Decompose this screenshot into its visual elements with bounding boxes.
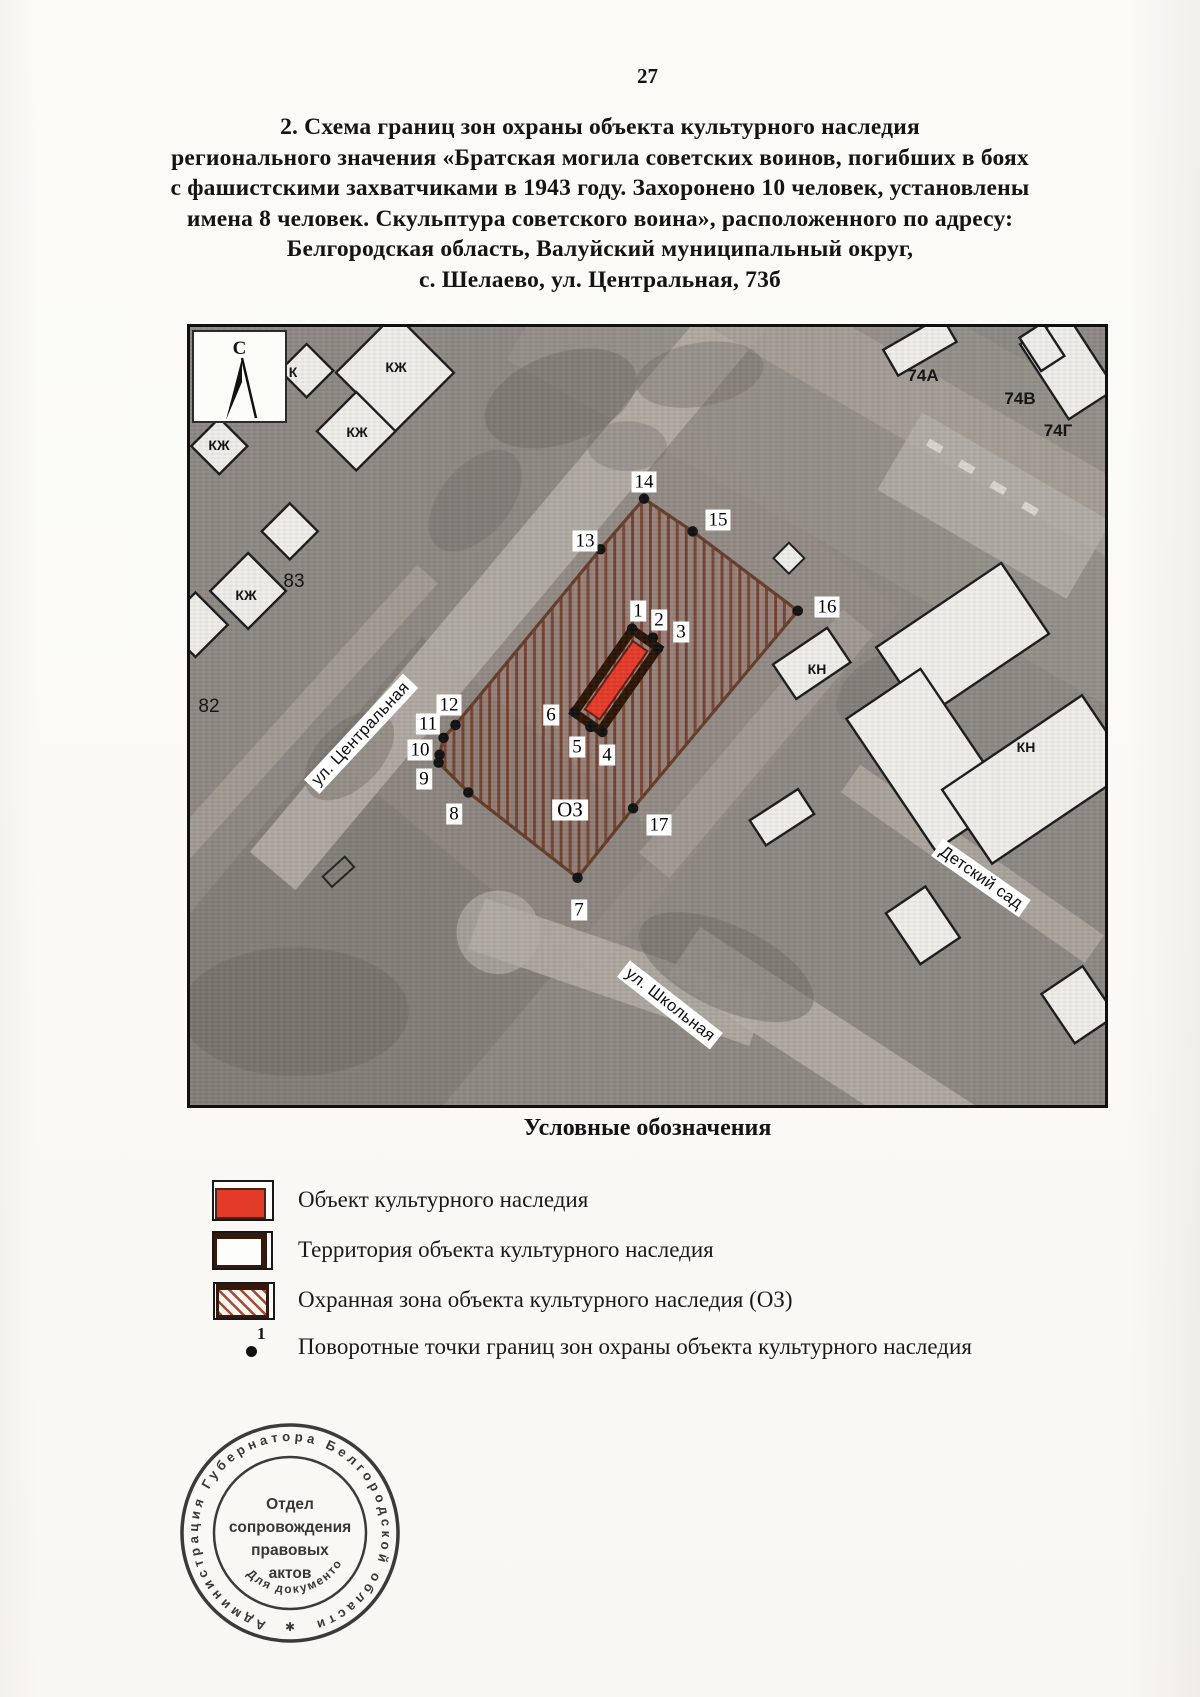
point-label-8: 8 — [446, 804, 462, 825]
point-label-17: 17 — [647, 815, 672, 836]
stamp-star-icon: ✱ — [285, 1620, 295, 1634]
building-label-kn: КН — [808, 661, 827, 677]
doc-title-line: с. Шелаево, ул. Центральная, 73б — [0, 265, 1200, 296]
building-label-74b: 74В — [1004, 389, 1035, 409]
point-label-6: 6 — [543, 705, 559, 726]
legend-icon-heritage-object — [212, 1180, 274, 1221]
building-label-kzh: КЖ — [235, 587, 256, 603]
point-label-10: 10 — [408, 740, 433, 761]
legend-turning-point-number: 1 — [257, 1324, 266, 1344]
legend-label: Объект культурного наследия — [298, 1187, 588, 1213]
point-label-7: 7 — [571, 900, 587, 921]
doc-title-line: 2. Схема границ зон охраны объекта культ… — [0, 112, 1200, 143]
doc-title-line: регионального значения «Братская могила … — [0, 143, 1200, 174]
legend-label: Охранная зона объекта культурного наслед… — [298, 1287, 793, 1313]
point-label-9: 9 — [416, 769, 432, 790]
point-label-12: 12 — [437, 695, 462, 716]
point-label-16: 16 — [815, 597, 840, 618]
legend-icon-protection-zone — [213, 1282, 275, 1320]
legend-icon-territory — [212, 1231, 273, 1270]
point-label-2: 2 — [651, 610, 667, 631]
zone-label-oz: ОЗ — [552, 800, 588, 821]
building-label-kzh: КЖ — [208, 437, 229, 453]
doc-title-line: Белгородская область, Валуйский муниципа… — [0, 234, 1200, 265]
building-label-kzh: КЖ — [385, 359, 406, 375]
point-label-15: 15 — [706, 510, 731, 531]
building-label-74a: 74А — [907, 366, 938, 386]
stamp-line: Отдел — [266, 1496, 314, 1513]
point-label-14: 14 — [632, 472, 657, 493]
building-label-kzh: КЖ — [346, 424, 367, 440]
satellite-map: С 1 2 3 4 5 6 7 8 9 10 11 12 13 14 15 16… — [187, 324, 1108, 1108]
building-label-74g: 74Г — [1044, 421, 1073, 441]
doc-title: 2. Схема границ зон охраны объекта культ… — [0, 112, 1200, 296]
point-label-3: 3 — [673, 622, 689, 643]
stamp-line: актов — [269, 1565, 312, 1582]
point-label-5: 5 — [569, 737, 585, 758]
building-label-82: 82 — [198, 696, 219, 718]
point-label-13: 13 — [573, 531, 598, 552]
point-label-11: 11 — [416, 714, 440, 735]
legend-label: Территория объекта культурного наследия — [298, 1237, 714, 1263]
legend-turning-point-dot — [246, 1346, 257, 1357]
document-page: 27 2. Схема границ зон охраны объекта ку… — [0, 0, 1200, 1697]
stamp-line: сопровождения — [229, 1519, 351, 1536]
legend-title: Условные обозначения — [187, 1115, 1108, 1142]
legend-label: Поворотные точки границ зон охраны объек… — [298, 1334, 972, 1360]
north-indicator: С — [192, 330, 287, 423]
building-label-k: К — [289, 364, 298, 380]
stamp-line: правовых — [251, 1542, 329, 1559]
north-arrow-icon — [220, 356, 264, 422]
point-label-4: 4 — [599, 745, 615, 766]
point-label-1: 1 — [630, 601, 646, 622]
building-label-83: 83 — [283, 571, 304, 593]
official-stamp: Администрация Губернатора Белгородской о… — [178, 1421, 402, 1645]
doc-title-line: с фашистскими захватчиками в 1943 году. … — [0, 173, 1200, 204]
page-number: 27 — [187, 64, 1108, 89]
building-label-kn: КН — [1017, 739, 1036, 755]
doc-title-line: имена 8 человек. Скульптура советского в… — [0, 204, 1200, 235]
